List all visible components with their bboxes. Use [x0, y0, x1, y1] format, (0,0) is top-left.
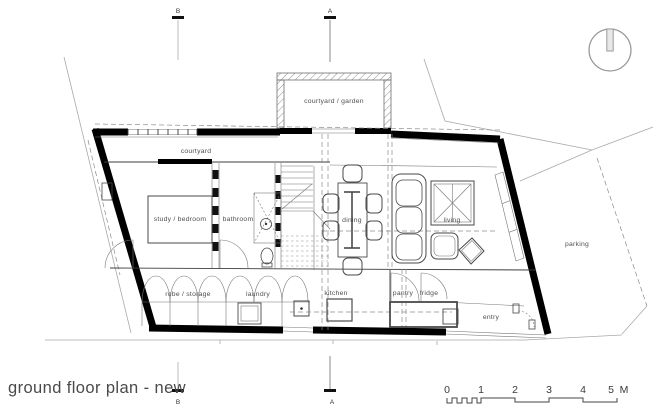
floor-plan-drawing: B A B A courtyard / garden courtyard stu… — [0, 0, 660, 415]
scale-tick-4: 4 — [580, 384, 586, 396]
exterior-walls — [93, 124, 548, 338]
storage-joinery — [142, 276, 310, 326]
room-label-dining: dining — [342, 217, 362, 224]
room-label-fridge: fridge — [420, 290, 439, 297]
room-label-courtyard-garden: courtyard / garden — [304, 98, 364, 105]
window-band — [128, 129, 197, 135]
staircase — [281, 166, 330, 266]
scale-tick-5: 5 — [608, 384, 614, 396]
scale-bar: 0 1 2 3 4 5 M — [444, 384, 628, 403]
scale-tick-2: 2 — [512, 384, 518, 396]
wardrobe-wall — [212, 163, 219, 268]
entry-fixtures — [513, 304, 535, 329]
room-label-entry: entry — [483, 314, 500, 321]
section-marker-a-bottom: A — [324, 356, 336, 406]
pantry-fridge-joinery — [390, 273, 458, 327]
alignment-lines — [322, 134, 498, 330]
study-bedroom-furniture — [102, 183, 212, 268]
room-label-study-bedroom: study / bedroom — [154, 216, 207, 223]
room-label-pantry: pantry — [393, 290, 414, 297]
room-label-laundry: laundry — [246, 291, 270, 298]
section-label-b-top: B — [176, 8, 180, 15]
scale-tick-3: 3 — [546, 384, 552, 396]
section-marker-b-top: B — [172, 8, 184, 60]
north-arrow-icon — [589, 29, 631, 71]
scale-unit: M — [620, 384, 629, 396]
room-label-kitchen: kitchen — [324, 290, 347, 297]
section-label-b-bottom: B — [176, 399, 180, 406]
room-label-courtyard: courtyard — [181, 148, 212, 155]
bathroom-fixtures — [220, 193, 281, 268]
scale-tick-0: 0 — [444, 384, 450, 396]
room-label-robe-storage: robe / storage — [165, 291, 210, 298]
interior-walls — [95, 137, 536, 328]
section-marker-a-top: A — [324, 8, 336, 62]
area-label-parking: parking — [565, 241, 589, 248]
drawing-title: ground floor plan - new — [8, 379, 186, 397]
scale-bar-rule — [447, 398, 617, 403]
bathroom-stair-wall — [275, 163, 281, 268]
room-label-living: living — [444, 217, 461, 224]
scale-tick-1: 1 — [478, 384, 484, 396]
room-label-bathroom: bathroom — [223, 216, 254, 223]
section-label-a-bottom: A — [330, 399, 335, 406]
section-label-a-top: A — [328, 8, 333, 15]
